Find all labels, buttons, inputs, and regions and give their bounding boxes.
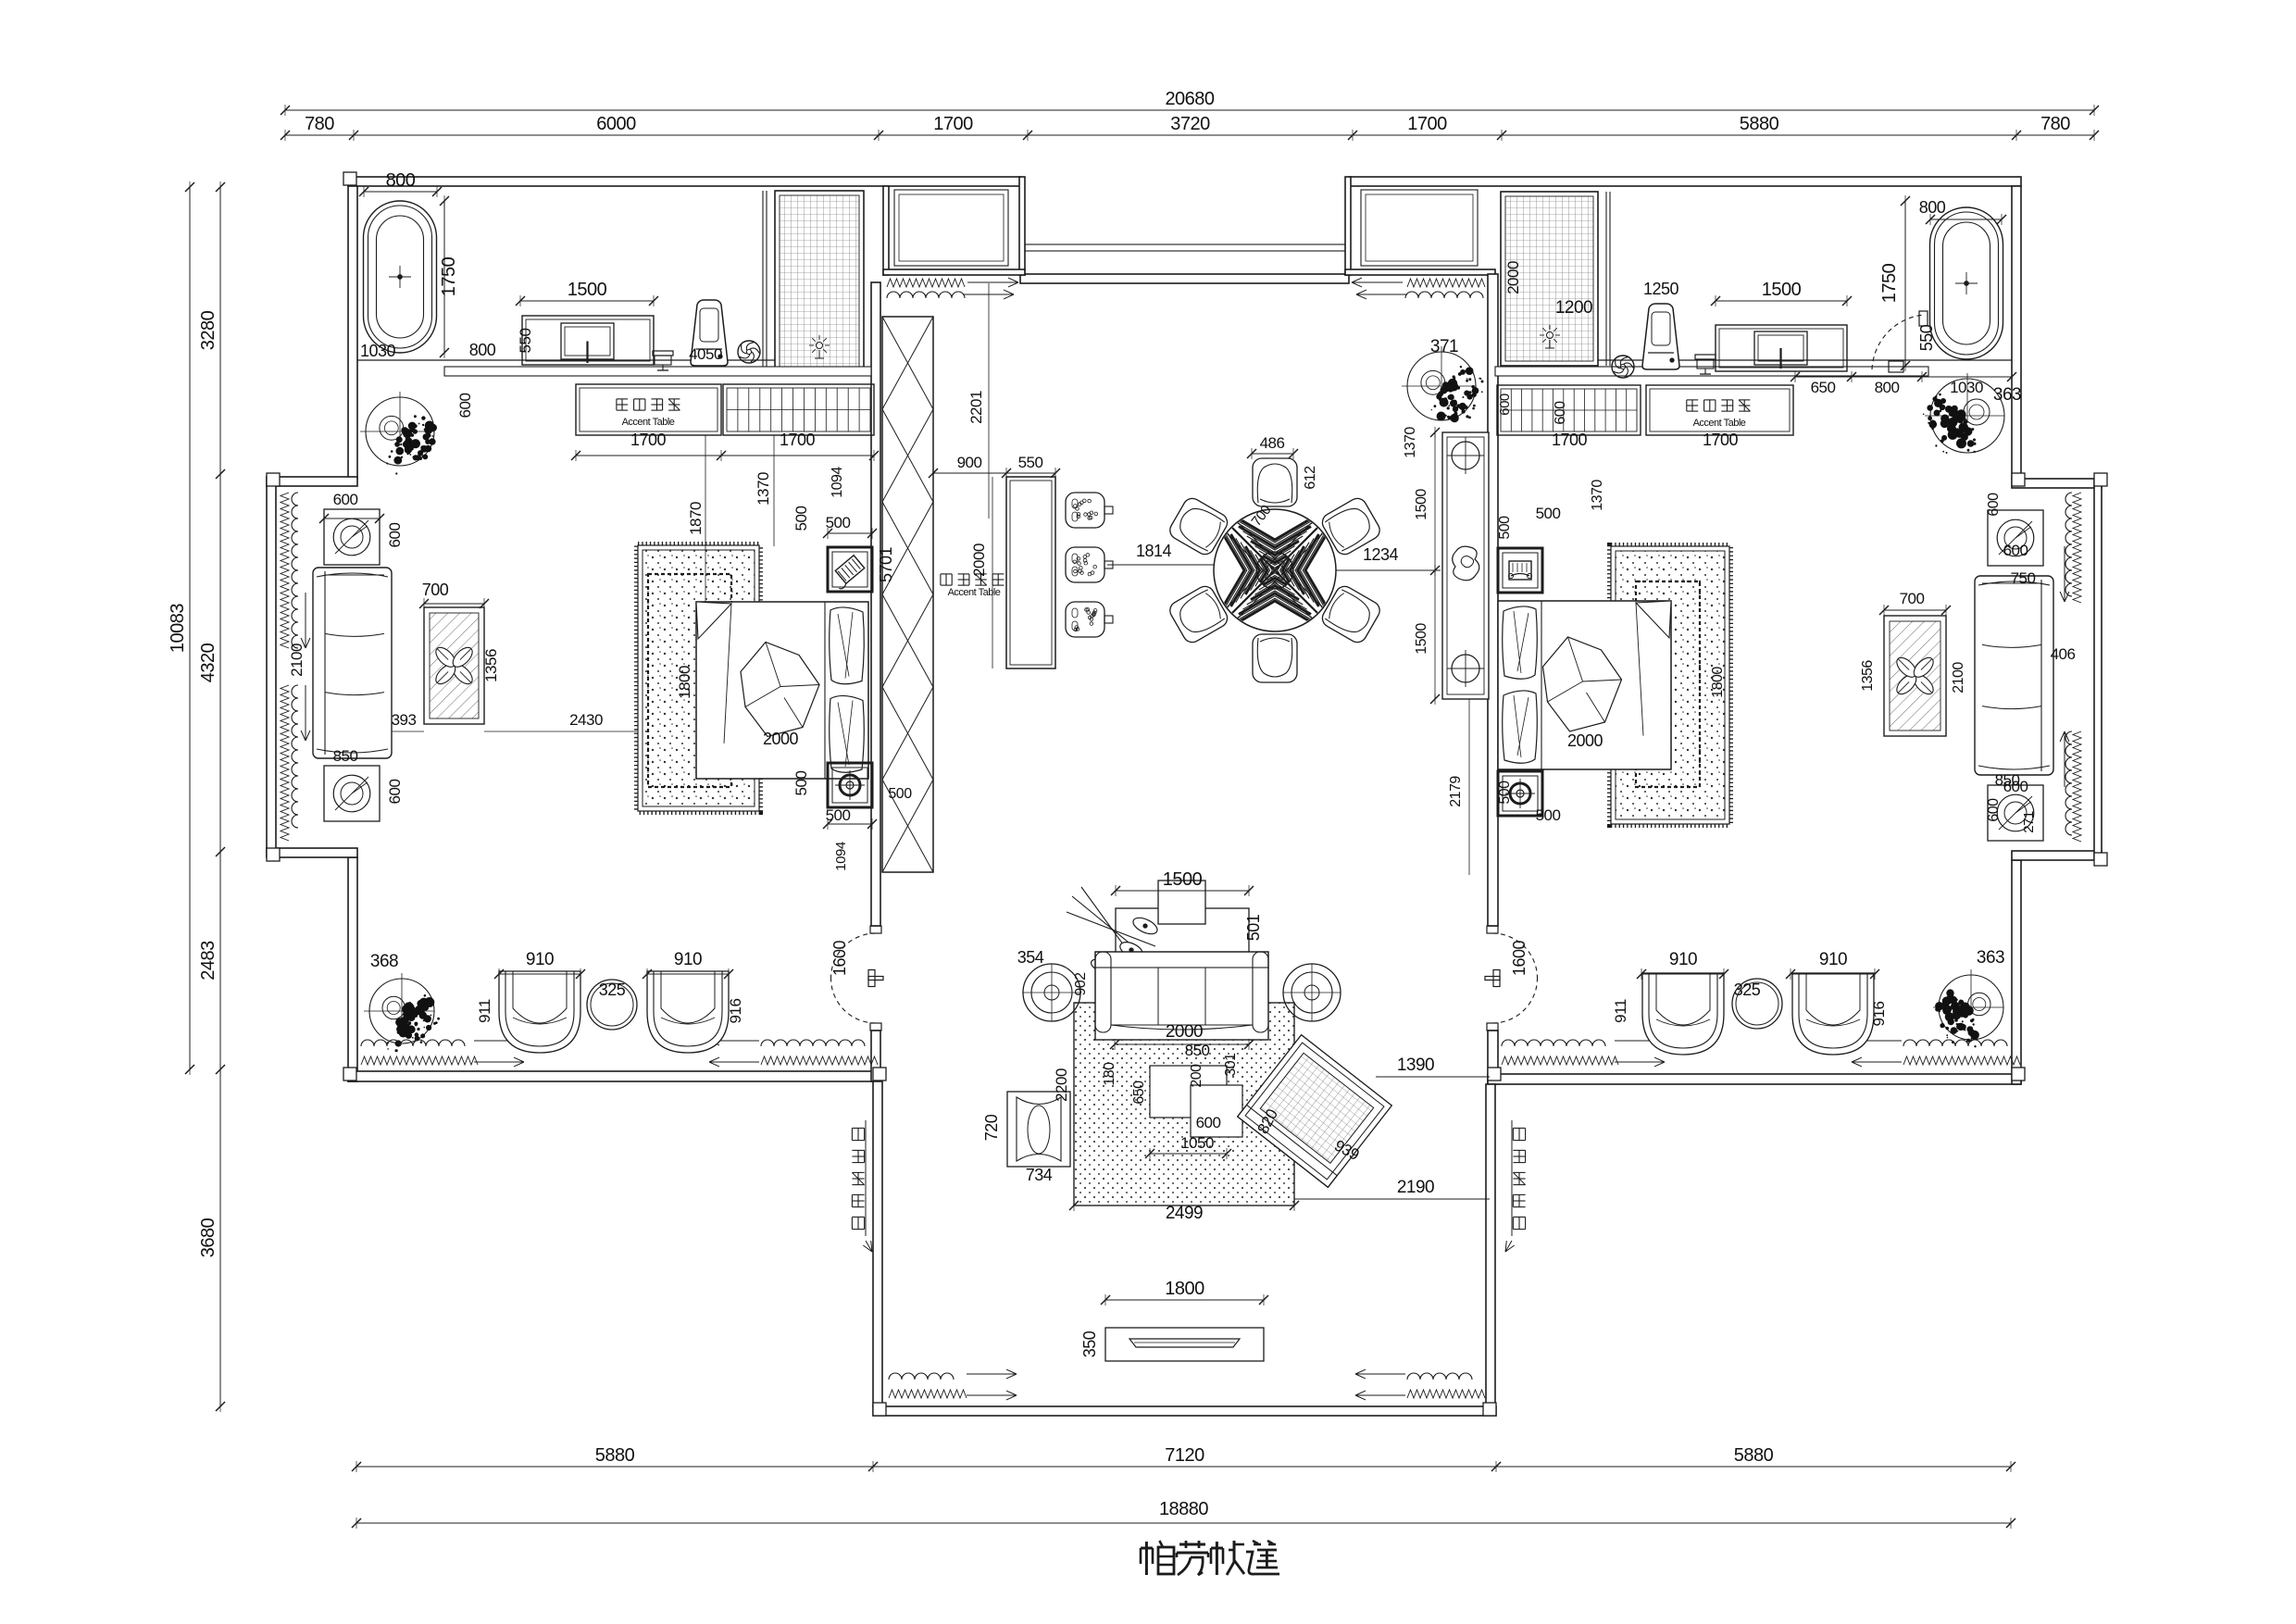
svg-text:800: 800: [1875, 379, 1900, 396]
svg-text:1030: 1030: [1950, 379, 1983, 396]
svg-text:325: 325: [599, 981, 626, 999]
svg-text:2000: 2000: [1504, 261, 1522, 294]
svg-text:2100: 2100: [288, 643, 306, 677]
svg-text:500: 500: [1497, 516, 1513, 540]
svg-text:2000: 2000: [763, 730, 799, 748]
svg-text:500: 500: [792, 506, 810, 531]
svg-text:1094: 1094: [830, 467, 845, 498]
svg-text:650: 650: [1131, 1081, 1147, 1105]
svg-text:2483: 2483: [198, 941, 218, 981]
svg-text:2000: 2000: [1166, 1022, 1203, 1042]
svg-text:2190: 2190: [1397, 1178, 1434, 1197]
svg-text:910: 910: [674, 950, 702, 969]
svg-text:500: 500: [1497, 781, 1513, 805]
svg-text:1700: 1700: [1407, 114, 1447, 134]
svg-text:612: 612: [1303, 466, 1318, 490]
svg-text:1800: 1800: [1165, 1279, 1204, 1299]
svg-text:600: 600: [456, 394, 474, 418]
svg-text:1094: 1094: [833, 842, 849, 871]
svg-text:1370: 1370: [755, 472, 772, 506]
svg-text:5880: 5880: [1734, 1445, 1774, 1466]
svg-text:2201: 2201: [967, 391, 985, 424]
svg-text:10083: 10083: [168, 604, 188, 653]
svg-text:800: 800: [1919, 198, 1946, 217]
svg-text:3280: 3280: [198, 310, 218, 350]
svg-text:6000: 6000: [596, 114, 636, 134]
svg-text:363: 363: [1977, 948, 2004, 968]
svg-text:650: 650: [1811, 379, 1836, 396]
svg-text:911: 911: [476, 999, 493, 1023]
svg-text:500: 500: [826, 806, 851, 824]
svg-text:354: 354: [1017, 948, 1044, 967]
svg-text:350: 350: [1080, 1330, 1099, 1357]
svg-text:1200: 1200: [1555, 298, 1592, 318]
svg-text:7120: 7120: [1165, 1445, 1204, 1466]
svg-text:1250: 1250: [1643, 280, 1679, 298]
svg-text:600: 600: [333, 491, 358, 508]
svg-text:916: 916: [1870, 1002, 1888, 1027]
svg-text:1600: 1600: [830, 940, 849, 976]
svg-text:1500: 1500: [1414, 489, 1429, 520]
svg-text:Accent Table: Accent Table: [1693, 418, 1746, 429]
svg-text:1356: 1356: [1860, 660, 1876, 692]
svg-text:3720: 3720: [1170, 114, 1210, 134]
svg-text:800: 800: [469, 341, 496, 359]
svg-text:600: 600: [386, 523, 404, 548]
svg-text:500: 500: [792, 771, 810, 796]
svg-text:1390: 1390: [1397, 1056, 1434, 1075]
svg-text:1700: 1700: [933, 114, 973, 134]
svg-text:550: 550: [517, 329, 534, 354]
svg-text:600: 600: [1497, 394, 1513, 416]
svg-text:501: 501: [1244, 914, 1263, 941]
svg-text:325: 325: [1734, 981, 1761, 999]
svg-text:734: 734: [1026, 1166, 1053, 1184]
svg-text:2000: 2000: [970, 543, 988, 577]
svg-text:363: 363: [1993, 385, 2021, 405]
svg-text:750: 750: [2011, 569, 2036, 587]
svg-text:1370: 1370: [1403, 427, 1418, 458]
svg-text:850: 850: [1185, 1042, 1210, 1059]
svg-text:2430: 2430: [569, 711, 603, 729]
svg-text:1814: 1814: [1136, 542, 1172, 560]
svg-text:2200: 2200: [1053, 1068, 1070, 1102]
svg-text:910: 910: [526, 950, 554, 969]
svg-text:500: 500: [1536, 505, 1561, 522]
svg-text:2000: 2000: [1567, 731, 1603, 750]
svg-text:1500: 1500: [1163, 869, 1203, 890]
svg-text:1356: 1356: [482, 649, 500, 682]
svg-text:600: 600: [1553, 401, 1568, 425]
svg-text:Accent Table: Accent Table: [622, 417, 675, 428]
svg-text:5701: 5701: [877, 546, 895, 582]
svg-text:2100: 2100: [1951, 662, 1966, 693]
svg-text:500: 500: [826, 514, 851, 531]
svg-text:700: 700: [422, 581, 449, 599]
svg-text:600: 600: [1196, 1114, 1221, 1131]
svg-text:1030: 1030: [360, 342, 396, 360]
svg-text:1500: 1500: [1762, 280, 1802, 300]
svg-text:720: 720: [982, 1114, 1001, 1141]
svg-text:900: 900: [957, 454, 982, 471]
svg-text:5880: 5880: [1740, 114, 1779, 134]
svg-text:911: 911: [1612, 999, 1629, 1023]
svg-text:902: 902: [1073, 972, 1089, 996]
svg-text:850: 850: [333, 747, 358, 765]
svg-text:1050: 1050: [1180, 1134, 1214, 1152]
svg-text:600: 600: [1986, 798, 2002, 822]
svg-text:1750: 1750: [1879, 263, 1900, 303]
svg-text:910: 910: [1819, 950, 1847, 969]
svg-text:4050: 4050: [689, 345, 722, 363]
svg-text:18880: 18880: [1159, 1499, 1208, 1519]
svg-text:916: 916: [727, 999, 744, 1024]
svg-text:600: 600: [2003, 542, 2028, 559]
svg-text:550: 550: [1917, 324, 1936, 351]
svg-text:1800: 1800: [1710, 667, 1726, 698]
svg-text:780: 780: [305, 114, 334, 134]
svg-text:1800: 1800: [676, 666, 693, 699]
svg-text:500: 500: [1536, 806, 1561, 824]
svg-text:1370: 1370: [1590, 480, 1605, 511]
svg-text:800: 800: [386, 170, 416, 191]
svg-text:301: 301: [1223, 1053, 1239, 1077]
svg-text:1500: 1500: [1414, 623, 1429, 655]
svg-text:5880: 5880: [595, 1445, 635, 1466]
svg-text:406: 406: [2051, 645, 2076, 663]
svg-text:486: 486: [1260, 434, 1285, 452]
svg-text:271: 271: [2021, 811, 2037, 833]
svg-text:600: 600: [2003, 778, 2028, 795]
svg-text:180: 180: [1102, 1062, 1117, 1086]
svg-text:2179: 2179: [1448, 776, 1464, 807]
svg-text:371: 371: [1430, 337, 1458, 356]
svg-text:600: 600: [1986, 493, 2002, 517]
svg-text:200: 200: [1189, 1064, 1204, 1088]
svg-text:910: 910: [1669, 950, 1697, 969]
svg-text:3680: 3680: [198, 1218, 218, 1257]
svg-text:1750: 1750: [439, 256, 459, 296]
svg-text:550: 550: [1018, 454, 1043, 471]
svg-text:2499: 2499: [1166, 1204, 1203, 1223]
svg-text:20680: 20680: [1165, 89, 1214, 109]
svg-text:1700: 1700: [630, 431, 667, 449]
svg-text:1700: 1700: [1552, 431, 1588, 449]
svg-text:700: 700: [1900, 590, 1925, 607]
svg-text:1870: 1870: [687, 502, 705, 535]
svg-text:1234: 1234: [1363, 545, 1399, 564]
svg-text:600: 600: [386, 780, 404, 805]
svg-text:500: 500: [888, 786, 912, 802]
svg-text:368: 368: [370, 952, 398, 971]
svg-text:393: 393: [392, 711, 417, 729]
svg-text:1600: 1600: [1510, 940, 1529, 976]
svg-text:1500: 1500: [568, 280, 607, 300]
svg-text:780: 780: [2040, 114, 2070, 134]
svg-text:1700: 1700: [780, 431, 816, 449]
svg-text:4320: 4320: [198, 643, 218, 682]
svg-text:1700: 1700: [1703, 431, 1739, 449]
